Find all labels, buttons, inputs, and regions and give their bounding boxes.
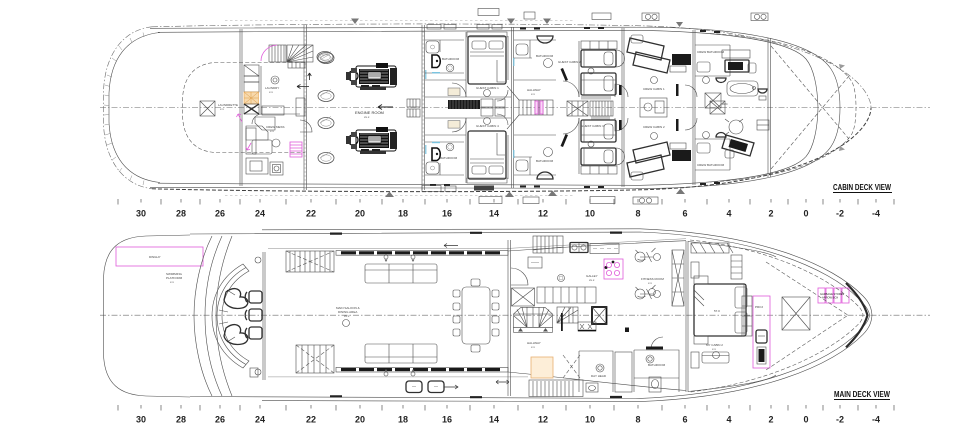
svg-text:10: 10: [585, 415, 595, 425]
svg-text:24: 24: [255, 415, 265, 425]
svg-text:ARROW BOX: ARROW BOX: [822, 296, 838, 300]
svg-text:x.x: x.x: [531, 345, 535, 349]
svg-text:BATHROOM: BATHROOM: [648, 363, 666, 367]
svg-text:22: 22: [306, 209, 316, 219]
svg-text:26: 26: [215, 209, 225, 219]
svg-text:x.x: x.x: [270, 129, 274, 133]
svg-text:28: 28: [176, 209, 186, 219]
svg-text:2: 2: [768, 209, 773, 219]
svg-text:BATHROOM: BATHROOM: [440, 156, 458, 160]
svg-text:DAY HEAD: DAY HEAD: [591, 374, 607, 378]
svg-text:GUEST CABIN 3: GUEST CABIN 3: [581, 124, 604, 128]
svg-text:22: 22: [306, 415, 316, 425]
svg-text:10: 10: [585, 209, 595, 219]
svg-text:-2: -2: [836, 415, 844, 425]
svg-text:CABIN DECK VIEW: CABIN DECK VIEW: [833, 182, 892, 192]
svg-text:28: 28: [176, 415, 186, 425]
svg-text:-4: -4: [872, 209, 880, 219]
svg-text:xx.x: xx.x: [589, 278, 595, 282]
svg-text:BATHROOM: BATHROOM: [442, 57, 460, 61]
svg-text:14: 14: [489, 209, 499, 219]
svg-text:0: 0: [803, 415, 808, 425]
svg-text:2: 2: [768, 415, 773, 425]
svg-text:PLATFORM: PLATFORM: [166, 276, 183, 280]
svg-text:12: 12: [538, 415, 548, 425]
svg-text:30: 30: [136, 415, 146, 425]
svg-text:12: 12: [538, 209, 548, 219]
svg-text:26: 26: [215, 415, 225, 425]
svg-text:18: 18: [398, 209, 408, 219]
svg-text:W/C: W/C: [722, 102, 729, 106]
svg-text:CREW MESS: CREW MESS: [266, 125, 285, 129]
svg-text:CREW CABIN 1: CREW CABIN 1: [643, 87, 665, 91]
svg-text:x.x: x.x: [648, 281, 652, 285]
svg-text:FITNESS ROOM: FITNESS ROOM: [641, 277, 664, 281]
svg-text:GUEST CABIN 2: GUEST CABIN 2: [558, 60, 581, 64]
svg-text:24: 24: [255, 209, 265, 219]
svg-text:16: 16: [442, 209, 452, 219]
svg-text:DINGHY: DINGHY: [149, 255, 161, 259]
svg-text:ENGINE ROOM: ENGINE ROOM: [355, 110, 384, 115]
svg-text:20: 20: [355, 415, 365, 425]
svg-text:8: 8: [635, 209, 640, 219]
svg-text:BATHROOM: BATHROOM: [536, 54, 554, 58]
svg-text:4: 4: [726, 209, 731, 219]
svg-text:6: 6: [682, 415, 687, 425]
svg-text:x.x: x.x: [269, 90, 273, 94]
svg-text:CREW BATHROOM: CREW BATHROOM: [697, 163, 725, 167]
svg-text:MAIN DECK VIEW: MAIN DECK VIEW: [834, 389, 891, 399]
svg-text:14: 14: [489, 415, 499, 425]
svg-text:x.x: x.x: [220, 107, 224, 111]
svg-text:18: 18: [398, 415, 408, 425]
svg-text:57.0: 57.0: [714, 309, 720, 313]
svg-text:8: 8: [635, 415, 640, 425]
svg-text:30: 30: [136, 209, 146, 219]
svg-text:PROJ: PROJ: [755, 305, 764, 309]
svg-text:20: 20: [355, 209, 365, 219]
svg-text:CREW CABIN 2: CREW CABIN 2: [643, 125, 665, 129]
svg-text:x.x: x.x: [531, 92, 535, 96]
svg-text:CREW BATHROOM: CREW BATHROOM: [697, 50, 725, 54]
svg-text:-2: -2: [836, 209, 844, 219]
svg-text:xx.x: xx.x: [364, 115, 370, 119]
svg-text:-4: -4: [872, 415, 880, 425]
svg-text:4: 4: [726, 415, 731, 425]
svg-text:0: 0: [803, 209, 808, 219]
svg-text:x.x: x.x: [712, 347, 716, 351]
svg-text:xx.x: xx.x: [344, 314, 350, 318]
svg-text:GARBAGE STORES: GARBAGE STORES: [820, 292, 844, 296]
svg-text:16: 16: [442, 415, 452, 425]
svg-text:x.x: x.x: [170, 280, 174, 284]
svg-text:6: 6: [682, 209, 687, 219]
svg-text:BATHROOM: BATHROOM: [536, 159, 554, 163]
